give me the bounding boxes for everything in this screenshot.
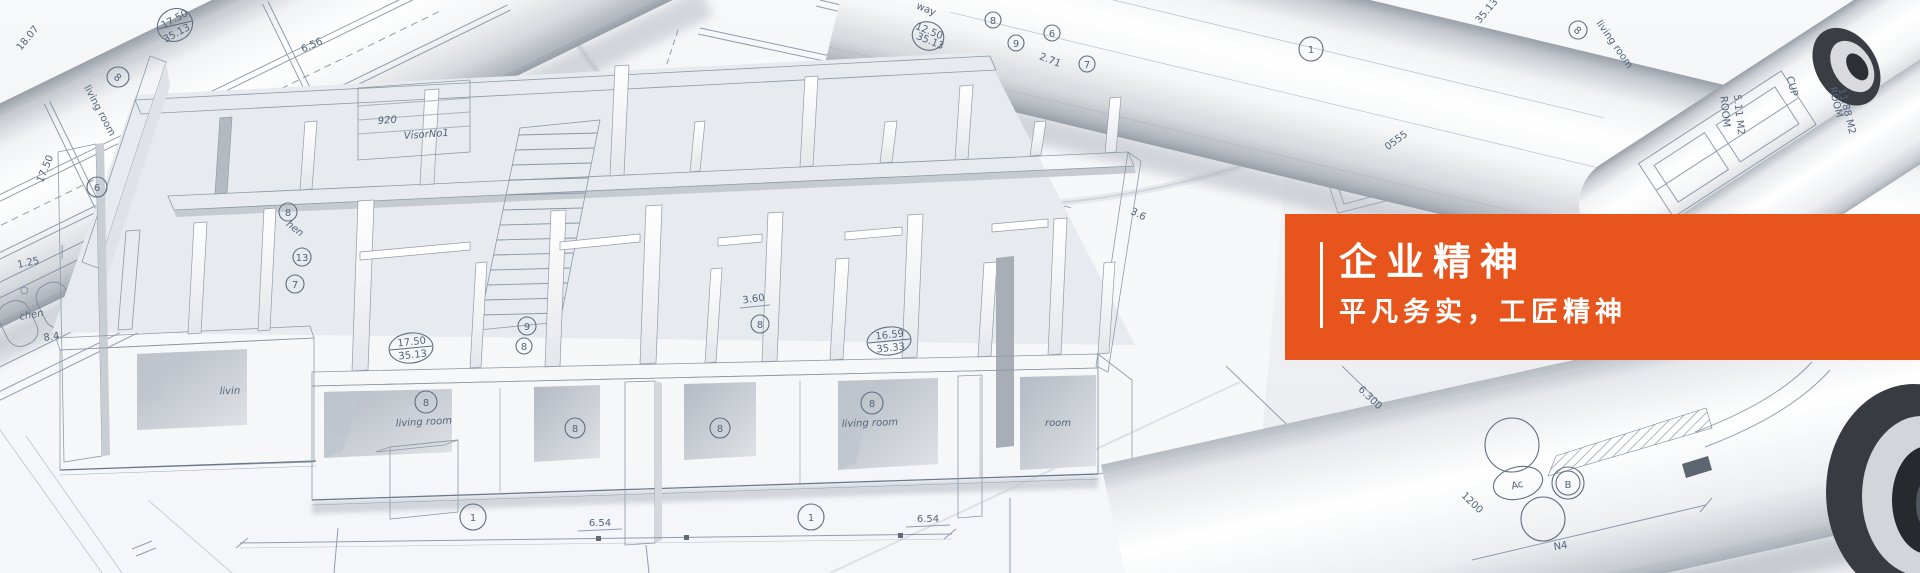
room-label: living room <box>842 417 899 430</box>
callout-number: 7 <box>1084 60 1090 71</box>
hero-banner: 18.07 living room 8 17.50 35.13 17.50 6 … <box>0 0 1920 573</box>
callout-number: 8 <box>990 16 996 27</box>
dimension-value: 6.54 <box>917 514 939 525</box>
callout-number: 8 <box>521 342 527 353</box>
room-label: livin <box>219 386 240 398</box>
blueprint-label: 920 <box>377 115 397 127</box>
callout-number: 8 <box>717 424 723 435</box>
banner-text-block: 企业精神 平凡务实，工匠精神 <box>1339 244 1627 326</box>
room-label: room <box>1045 418 1071 429</box>
callout-number: 8 <box>572 424 578 435</box>
slogan-panel: 企业精神 平凡务实，工匠精神 <box>1285 214 1920 360</box>
callout-number: 1 <box>1308 45 1314 56</box>
dimension-value: 6.54 <box>589 518 611 529</box>
callout-number: 7 <box>292 280 298 291</box>
callout-number: 1 <box>808 513 814 524</box>
banner-divider <box>1320 242 1323 328</box>
callout-number: 8 <box>423 398 429 409</box>
blueprint-label: N4 <box>1553 540 1568 553</box>
callout-number: 8 <box>757 320 763 331</box>
callout-number: 9 <box>524 322 530 333</box>
callout-number: 6 <box>94 183 100 194</box>
callout-number: 13 <box>296 253 309 264</box>
banner-title: 企业精神 <box>1339 244 1627 282</box>
callout-number: 9 <box>1013 39 1019 50</box>
callout-number: 1 <box>470 513 476 524</box>
callout-label: B <box>1565 480 1572 491</box>
banner-subtitle: 平凡务实，工匠精神 <box>1339 299 1627 326</box>
callout-number: 8 <box>869 399 875 410</box>
callout-number: 6 <box>1049 29 1055 40</box>
blueprint-label: 8.4 <box>43 331 60 344</box>
callout-number: 8 <box>285 208 291 219</box>
